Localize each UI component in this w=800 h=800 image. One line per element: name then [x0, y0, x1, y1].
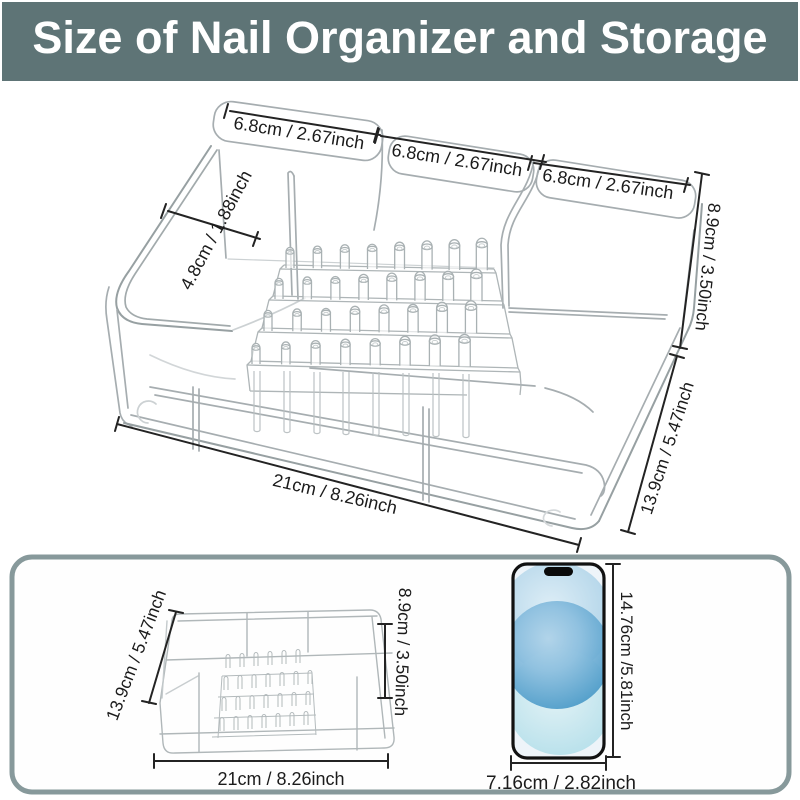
svg-text:21cm / 8.26inch: 21cm / 8.26inch [217, 769, 344, 789]
svg-text:21cm / 8.26inch: 21cm / 8.26inch [271, 470, 399, 518]
svg-text:6.8cm / 2.67inch: 6.8cm / 2.67inch [390, 140, 524, 180]
svg-text:4.8cm / 1.88inch: 4.8cm / 1.88inch [176, 167, 256, 293]
svg-text:6.8cm / 2.67inch: 6.8cm / 2.67inch [541, 165, 675, 203]
svg-text:7.16cm / 2.82inch: 7.16cm / 2.82inch [486, 773, 636, 794]
svg-text:6.8cm / 2.67inch: 6.8cm / 2.67inch [232, 113, 366, 153]
svg-text:Size of Nail Organizer and Sto: Size of Nail Organizer and Storage [32, 12, 767, 63]
svg-text:14.76cm /5.81inch: 14.76cm /5.81inch [617, 592, 636, 731]
